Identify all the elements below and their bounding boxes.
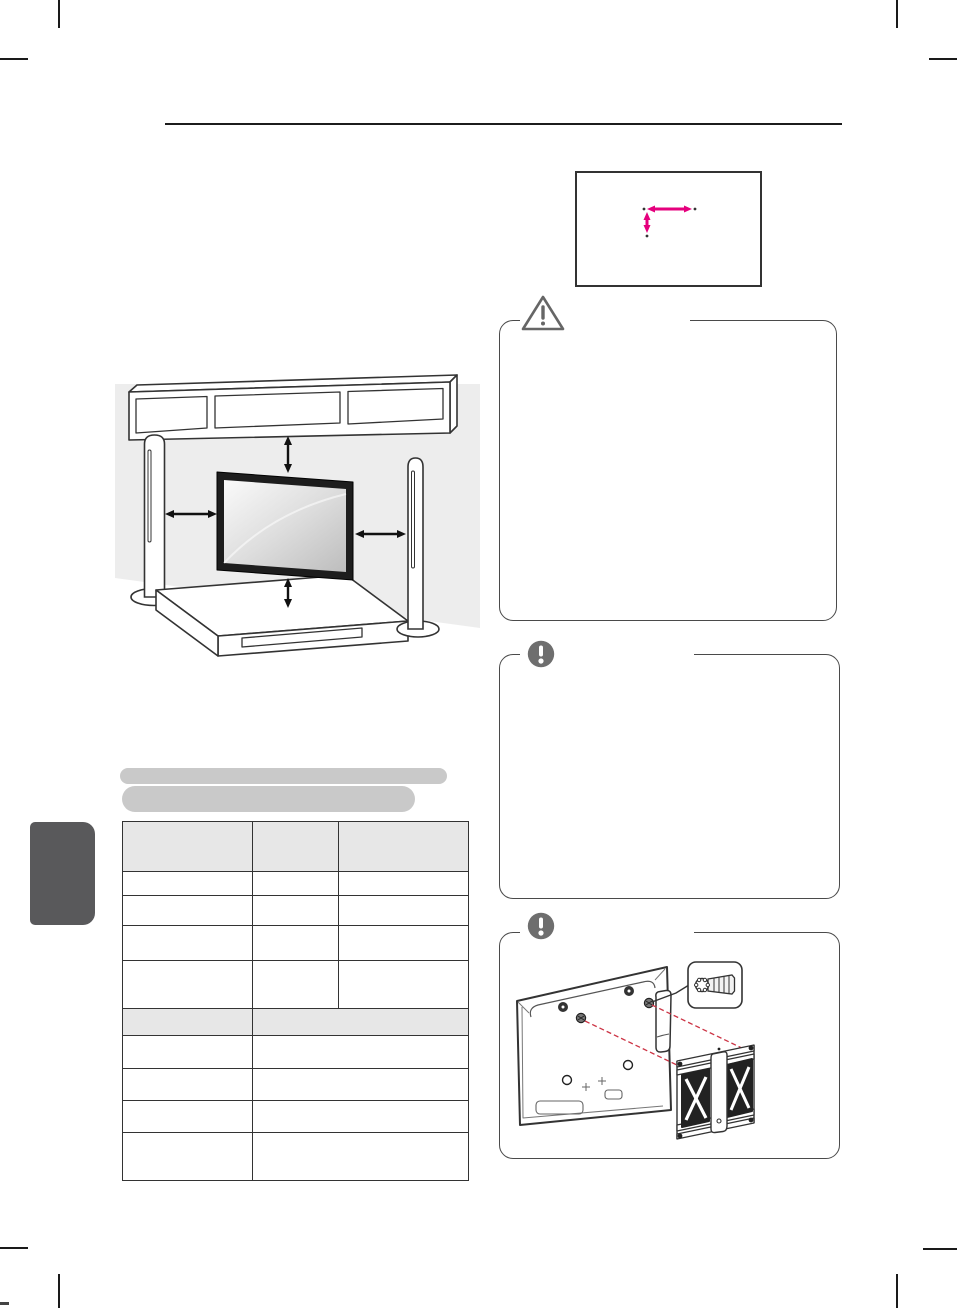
spec-header-cell — [123, 1009, 253, 1036]
table-row — [123, 961, 469, 1009]
spec-cell — [253, 926, 339, 961]
spec-header-cell — [123, 822, 253, 872]
spec-cell — [253, 1101, 469, 1133]
table-row — [123, 926, 469, 961]
wall-shelf — [129, 375, 457, 440]
language-side-tab — [30, 822, 95, 925]
exclamation-circle-icon — [527, 912, 555, 940]
magenta-horizontal-arrow — [647, 206, 692, 213]
spec-cell — [339, 872, 469, 896]
spec-header-cell — [339, 822, 469, 872]
spec-cell — [123, 1036, 253, 1069]
tv-rear-panel — [517, 967, 671, 1125]
crop-mark-bottom-right-v — [896, 1274, 898, 1308]
spec-cell — [123, 896, 253, 926]
heading-highlight-1 — [120, 768, 447, 784]
spec-cell — [123, 961, 253, 1009]
table-row — [123, 1101, 469, 1133]
header-rule — [165, 123, 842, 125]
crop-mark-bottom-left-h — [0, 1247, 28, 1249]
table-row — [123, 1009, 469, 1036]
spec-cell — [339, 926, 469, 961]
crop-mark-bottom-left-dash — [0, 1302, 9, 1305]
table-row — [123, 872, 469, 896]
crop-mark-top-left-h — [0, 58, 28, 60]
table-row — [123, 1069, 469, 1101]
spec-cell — [253, 896, 339, 926]
exclamation-circle-icon — [527, 640, 555, 668]
spec-table-container — [122, 821, 469, 1181]
wall-mount-bracket — [677, 1045, 754, 1139]
spec-table — [122, 821, 469, 1181]
tv-rear-wall-bracket-illustration — [505, 955, 765, 1155]
spec-cell — [123, 1101, 253, 1133]
vesa-dimension-box — [575, 171, 762, 287]
dimension-dot — [646, 235, 649, 238]
dimension-dot — [694, 208, 697, 211]
crop-mark-bottom-left-v — [58, 1274, 60, 1308]
note-box-1 — [499, 654, 840, 899]
crop-mark-top-left-v — [58, 0, 60, 28]
spec-header-cell — [253, 1009, 469, 1036]
manual-page — [0, 0, 957, 1308]
spec-cell — [339, 896, 469, 926]
table-row — [123, 1133, 469, 1181]
spec-cell — [123, 926, 253, 961]
spec-cell — [123, 872, 253, 896]
spec-header-cell — [253, 822, 339, 872]
table-row — [123, 1036, 469, 1069]
spec-cell — [253, 1133, 469, 1181]
table-row — [123, 896, 469, 926]
magenta-vertical-arrow — [644, 212, 651, 233]
heading-highlight-2 — [122, 786, 415, 812]
spec-cell — [339, 961, 469, 1009]
flat-tv — [217, 472, 353, 580]
crop-mark-bottom-right-h — [923, 1248, 957, 1250]
crop-mark-top-right-h — [929, 58, 957, 60]
warning-triangle-icon — [520, 293, 566, 333]
spec-cell — [253, 872, 339, 896]
crop-mark-top-right-v — [896, 0, 898, 28]
spec-cell — [253, 961, 339, 1009]
spec-cell — [123, 1069, 253, 1101]
spec-cell — [253, 1036, 469, 1069]
vesa-dimension-arrows — [577, 173, 760, 285]
table-row — [123, 822, 469, 872]
clearance-illustration — [112, 372, 484, 672]
dimension-dot — [643, 208, 646, 211]
spec-cell — [253, 1069, 469, 1101]
caution-box — [499, 320, 837, 621]
spec-cell — [123, 1133, 253, 1181]
